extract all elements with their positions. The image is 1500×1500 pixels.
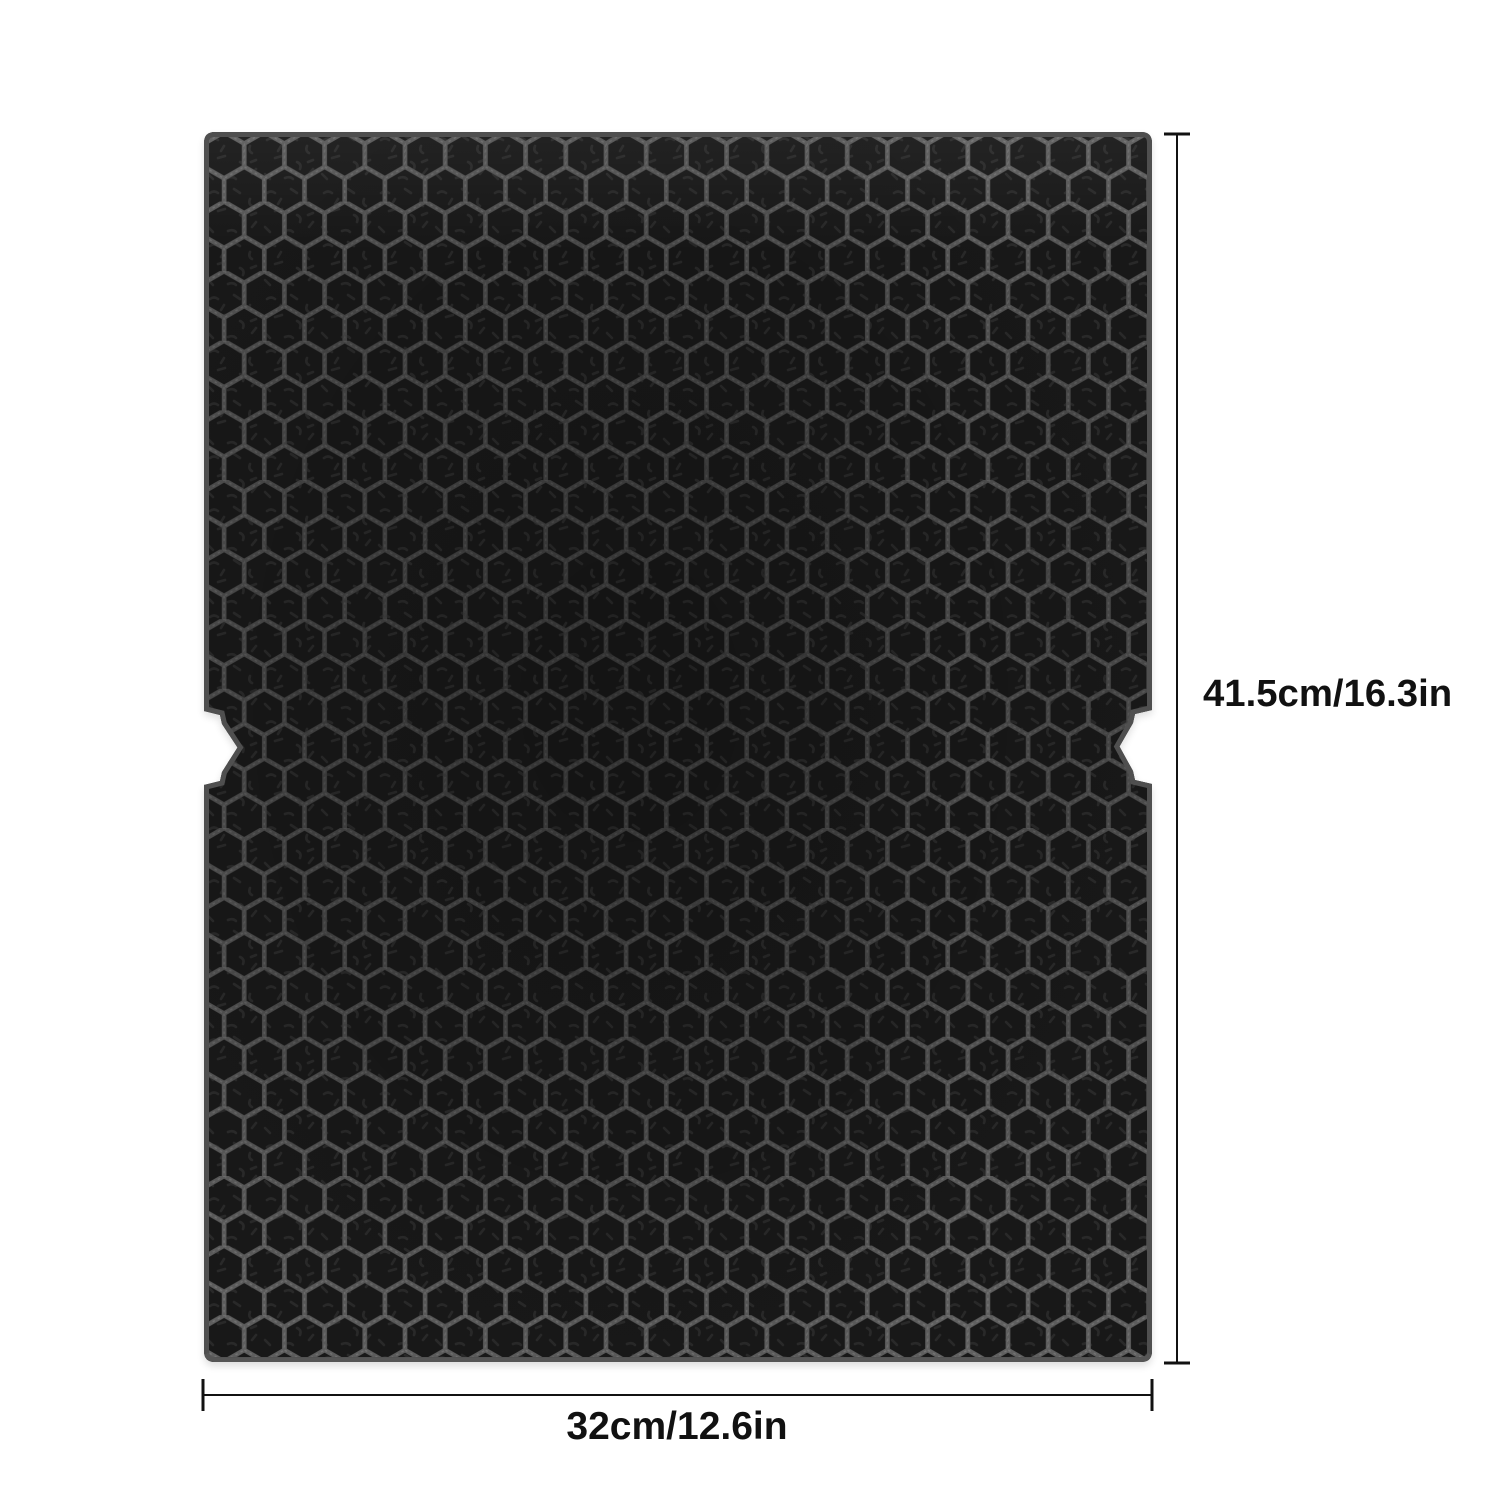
svg-text:41.5cm/16.3in: 41.5cm/16.3in [1203, 672, 1452, 715]
svg-text:32cm/12.6in: 32cm/12.6in [566, 1405, 787, 1448]
